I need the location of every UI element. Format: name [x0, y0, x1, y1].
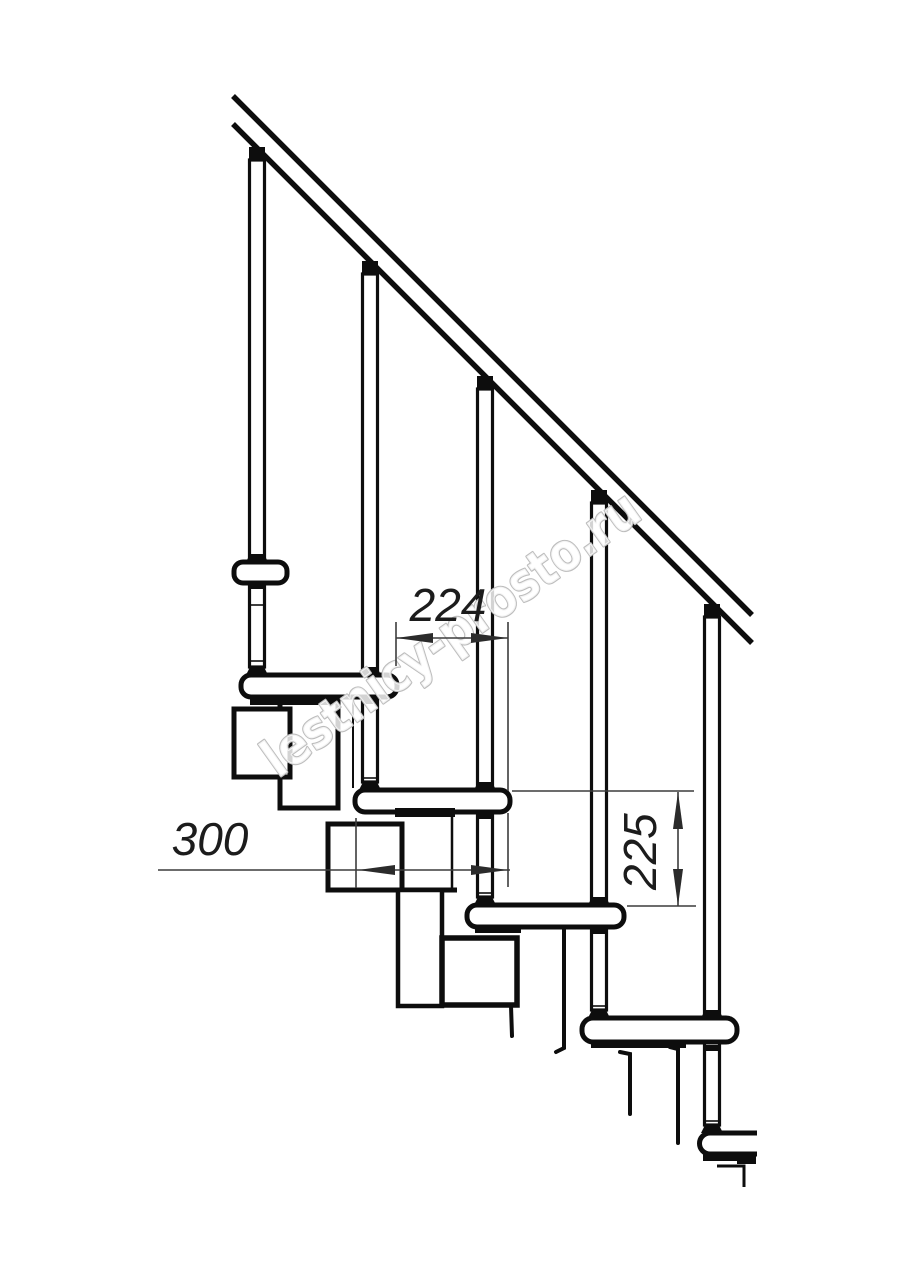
bracket	[704, 1045, 720, 1051]
staircase-diagram: lestnicy-prosto.ru 224 300 225	[0, 0, 914, 1280]
dimension-value-riser-height: 225	[614, 813, 666, 891]
module-box-step3	[442, 938, 517, 1005]
tread-4	[582, 1018, 737, 1042]
bracket	[249, 583, 265, 589]
rail-connector-1	[249, 147, 265, 161]
module-plate	[737, 1153, 756, 1164]
module-plate	[616, 1040, 686, 1048]
module-box-step2	[328, 824, 402, 890]
dimension-value-tread-depth: 300	[172, 813, 249, 865]
upper-flight-tread-end	[234, 562, 287, 583]
module-neck-step3	[398, 890, 442, 1006]
module-plate	[395, 808, 455, 817]
module-plate	[475, 925, 521, 933]
module-plate	[703, 1153, 737, 1161]
rail-connector-3	[477, 376, 493, 390]
arrowhead-up	[673, 792, 683, 829]
baluster-1	[250, 160, 265, 667]
drawing-canvas: lestnicy-prosto.ru 224 300 225	[0, 0, 914, 1280]
tread-5-truncated	[700, 1133, 758, 1154]
truncated-base-line	[717, 1166, 744, 1187]
bracket	[591, 1040, 616, 1048]
rail-connector-2	[362, 261, 378, 275]
bracket	[591, 927, 607, 934]
rail-connector-5	[704, 604, 720, 618]
bracket	[477, 812, 493, 819]
tread-3	[467, 905, 624, 927]
dimension-value-going: 224	[409, 579, 487, 631]
arrowhead-down	[673, 869, 683, 906]
